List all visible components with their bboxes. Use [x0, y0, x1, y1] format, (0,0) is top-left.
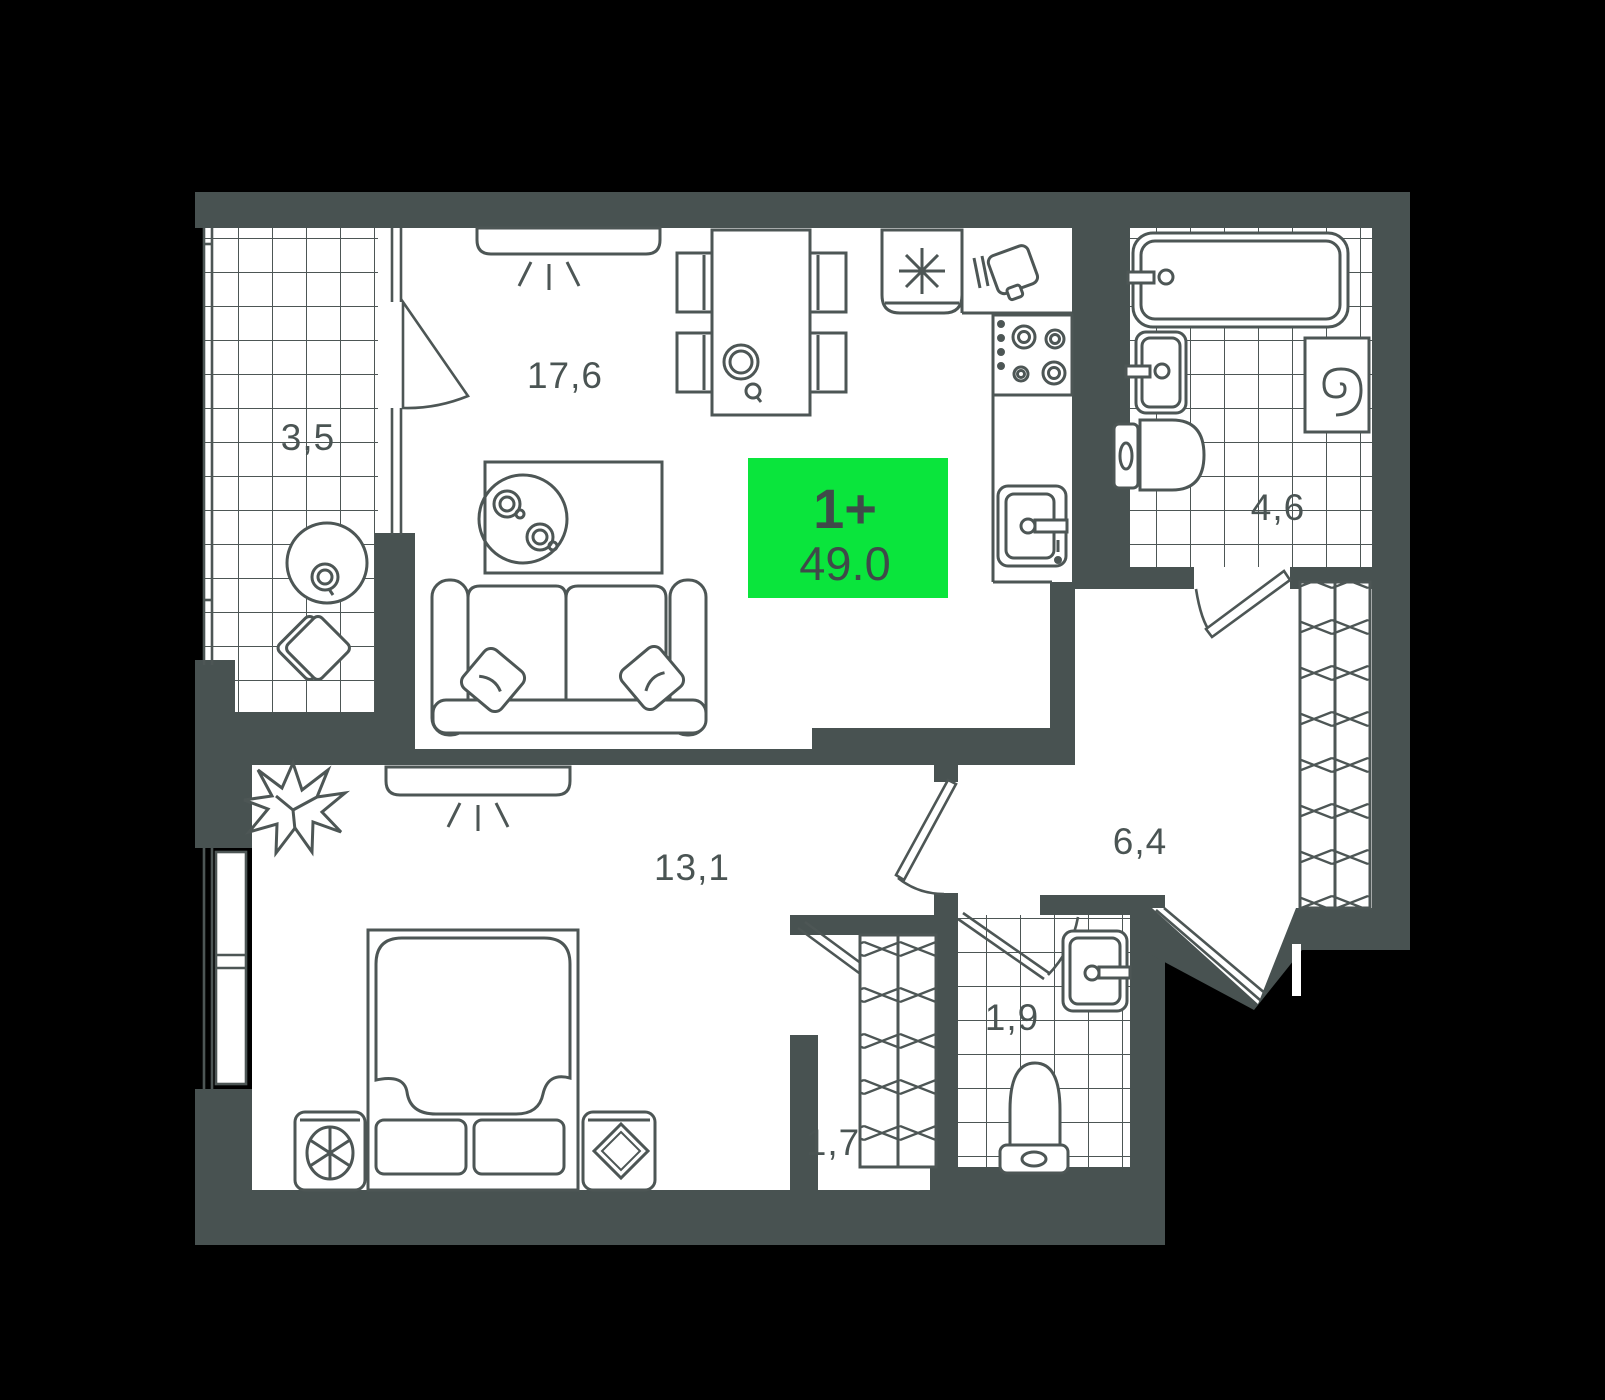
toilet-icon [1114, 420, 1204, 490]
cooktop-icon [993, 315, 1072, 395]
sofa-icon [432, 580, 706, 735]
unit-badge[interactable]: 1+ 49.0 [748, 458, 948, 598]
room-label-closet: 1,7 [806, 1122, 860, 1163]
unit-badge-area: 49.0 [799, 537, 890, 590]
room-label-wc: 1,9 [985, 997, 1039, 1038]
fridge-icon [882, 230, 962, 313]
washing-machine-icon [1305, 338, 1369, 432]
room-label-bathroom: 4,6 [1251, 487, 1305, 528]
balcony-table-icon [287, 523, 367, 603]
room-label-balcony: 3,5 [281, 417, 335, 458]
closet-wardrobe-icon [860, 935, 936, 1167]
floor-plan: 3,5 17,6 4,6 6,4 13,1 1,9 1,7 1+ 49.0 [0, 0, 1605, 1400]
room-label-hallway: 6,4 [1113, 821, 1167, 862]
kitchen-sink-icon [998, 486, 1067, 566]
ac-unit-icon [295, 1112, 365, 1190]
unit-badge-rooms: 1+ [813, 477, 877, 540]
bed-icon [368, 930, 578, 1190]
wardrobe-icon [1300, 582, 1370, 908]
room-label-living-kitchen: 17,6 [527, 355, 603, 396]
floor-plan-page: 3,5 17,6 4,6 6,4 13,1 1,9 1,7 1+ 49.0 [0, 0, 1605, 1400]
bathroom-sink-icon [1126, 332, 1186, 413]
room-label-bedroom: 13,1 [654, 847, 730, 888]
coffee-table-icon [479, 462, 662, 573]
wc-sink-icon [1063, 931, 1130, 1011]
bathtub-icon [1128, 233, 1348, 327]
decor-stand-icon [583, 1112, 655, 1190]
